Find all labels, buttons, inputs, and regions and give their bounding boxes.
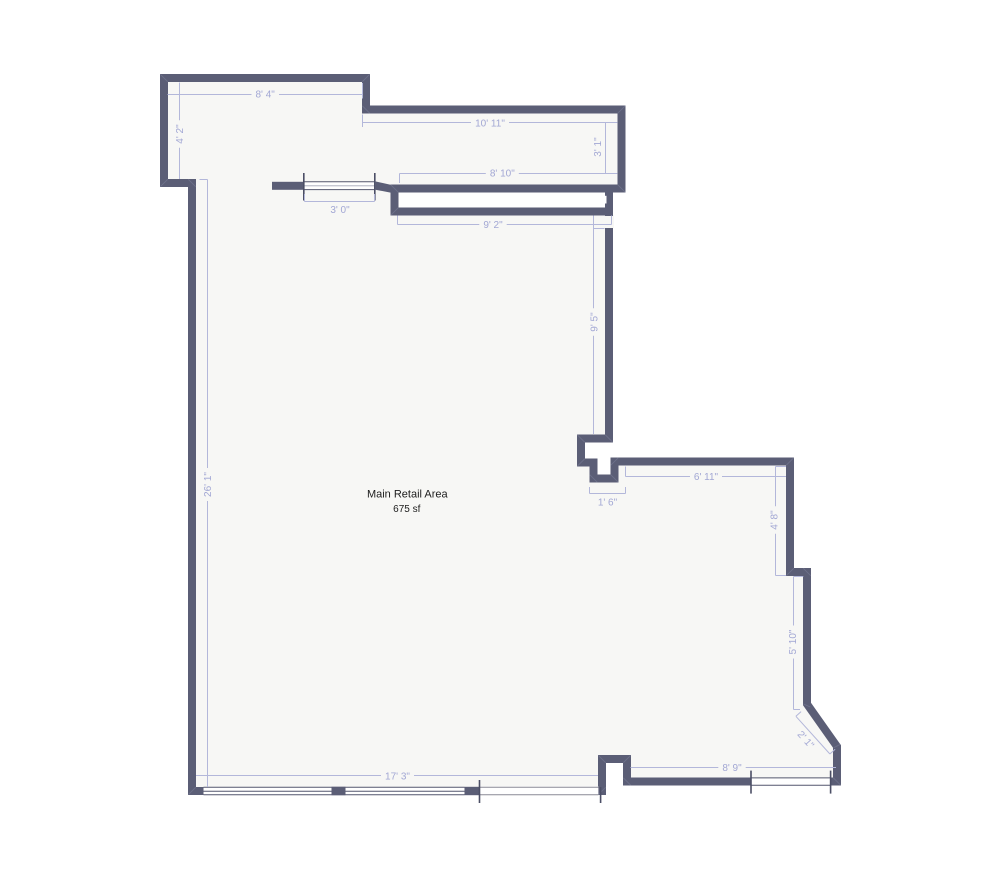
svg-text:3' 0": 3' 0": [330, 205, 350, 216]
svg-text:10' 11": 10' 11": [475, 118, 505, 129]
svg-text:9' 2": 9' 2": [483, 220, 503, 231]
svg-text:5' 10": 5' 10": [788, 629, 799, 654]
svg-text:8' 9": 8' 9": [722, 763, 742, 774]
svg-text:4' 2": 4' 2": [175, 124, 186, 144]
svg-text:17' 3": 17' 3": [385, 771, 410, 782]
svg-text:1' 6": 1' 6": [598, 497, 618, 508]
svg-text:675 sf: 675 sf: [393, 504, 420, 515]
svg-text:4' 8": 4' 8": [770, 510, 781, 530]
svg-text:Main Retail Area: Main Retail Area: [367, 489, 449, 501]
svg-text:8' 10": 8' 10": [490, 169, 515, 180]
svg-text:26' 1": 26' 1": [203, 472, 214, 497]
svg-text:8' 4": 8' 4": [256, 90, 276, 101]
svg-text:6' 11": 6' 11": [694, 472, 719, 483]
svg-text:9' 5": 9' 5": [590, 312, 601, 332]
svg-text:3' 1": 3' 1": [593, 137, 604, 157]
